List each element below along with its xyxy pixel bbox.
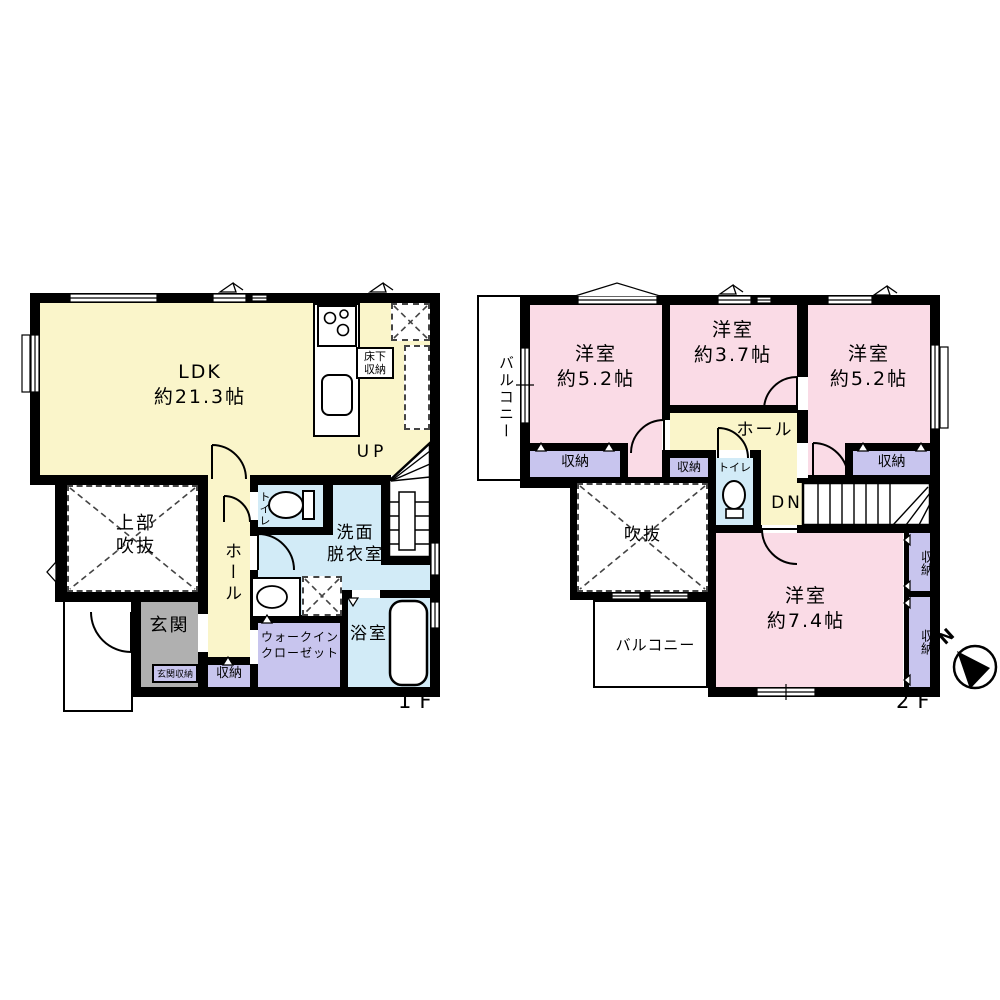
wall <box>133 687 440 697</box>
label-entrance: 玄関 <box>141 614 198 637</box>
kitchen-counter <box>313 303 360 437</box>
wall <box>30 475 208 485</box>
wall <box>55 485 67 592</box>
label-toilet-2f: トイレ <box>715 461 754 475</box>
label-bedroom-n: 洋室 約3.7帖 <box>678 318 788 367</box>
underfloor-label: 床下 <box>364 350 386 363</box>
label-bath: 浴室 <box>345 623 393 645</box>
label-hall-2f: ホール <box>733 419 797 441</box>
wall <box>753 450 761 533</box>
wall <box>55 592 208 602</box>
wall <box>208 657 250 665</box>
label-hall-1f: ホール <box>212 528 242 618</box>
washer-space <box>302 576 342 616</box>
ldk-size: 約21.3帖 <box>110 385 290 410</box>
label-bedroom-s: 洋室 約7.4帖 <box>751 584 861 633</box>
label-void-1f: 上部 吹抜 <box>86 512 186 559</box>
wall <box>662 450 670 486</box>
wall <box>670 405 797 413</box>
wall <box>528 295 940 305</box>
door-opening <box>716 450 750 458</box>
stairs-down <box>803 483 932 525</box>
ldk-name: LDK <box>110 360 290 385</box>
wall <box>30 293 440 303</box>
wall <box>250 615 348 623</box>
label-void-2f: 吹抜 <box>618 524 668 546</box>
label-stairs-up: UP <box>348 441 396 463</box>
wall <box>198 475 208 592</box>
door-opening <box>762 525 797 533</box>
porch <box>63 598 133 712</box>
label-washroom: 洗面 脱衣室 <box>298 522 413 566</box>
label-storage-1f: 収納 <box>208 666 250 683</box>
entrance-storage-box: 玄関収納 <box>152 664 198 683</box>
wall <box>708 450 716 690</box>
label-bedroom-ne: 洋室 約5.2帖 <box>814 342 924 391</box>
door-opening <box>198 614 208 652</box>
label-balcony-south: バルコニー <box>603 636 708 656</box>
wall <box>530 443 628 451</box>
underfloor-storage-box: 床下 収納 <box>356 347 394 379</box>
label-toilet-1f: トイレ <box>253 486 271 532</box>
wall <box>323 485 333 527</box>
wall <box>250 475 391 485</box>
label-wic: ウォークイン クローゼット <box>253 630 347 661</box>
door-opening <box>662 420 670 450</box>
floor2-label: 2F <box>896 688 956 715</box>
label-storage-ne: 収納 <box>853 453 930 471</box>
label-storage-e1: 収納 <box>907 536 933 590</box>
door-opening <box>250 536 258 570</box>
label-stairs-down: DN <box>764 492 810 514</box>
label-storage-e2: 収納 <box>907 608 933 676</box>
wall <box>708 525 940 533</box>
underfloor-label: 収納 <box>364 363 386 376</box>
refrigerator-space <box>391 303 430 341</box>
label-ldk: LDK 約21.3帖 <box>110 360 290 409</box>
label-balcony-west: バルコニー <box>487 332 515 462</box>
floor1-label: 1F <box>398 688 458 715</box>
label-storage-nw: 収納 <box>530 453 620 471</box>
wall <box>30 293 40 475</box>
label-storage-hall: 収納 <box>670 460 708 476</box>
wall <box>430 293 440 697</box>
wall <box>520 295 530 483</box>
wall <box>803 475 940 483</box>
label-bedroom-nw: 洋室 約5.2帖 <box>541 342 651 391</box>
wall <box>133 598 141 690</box>
wall <box>904 591 930 597</box>
wall <box>845 443 853 485</box>
door-opening <box>352 590 380 598</box>
cupboard-space <box>404 345 430 430</box>
compass-icon <box>954 646 996 689</box>
wall <box>570 483 577 600</box>
floorplan: LDK 約21.3帖 床下 収納 UP 上部 吹抜 ホール トイレ 洗面 脱衣室… <box>0 0 1000 1000</box>
wall <box>845 443 930 451</box>
wall <box>570 592 710 600</box>
door-opening <box>797 443 808 478</box>
door-opening <box>797 377 808 410</box>
